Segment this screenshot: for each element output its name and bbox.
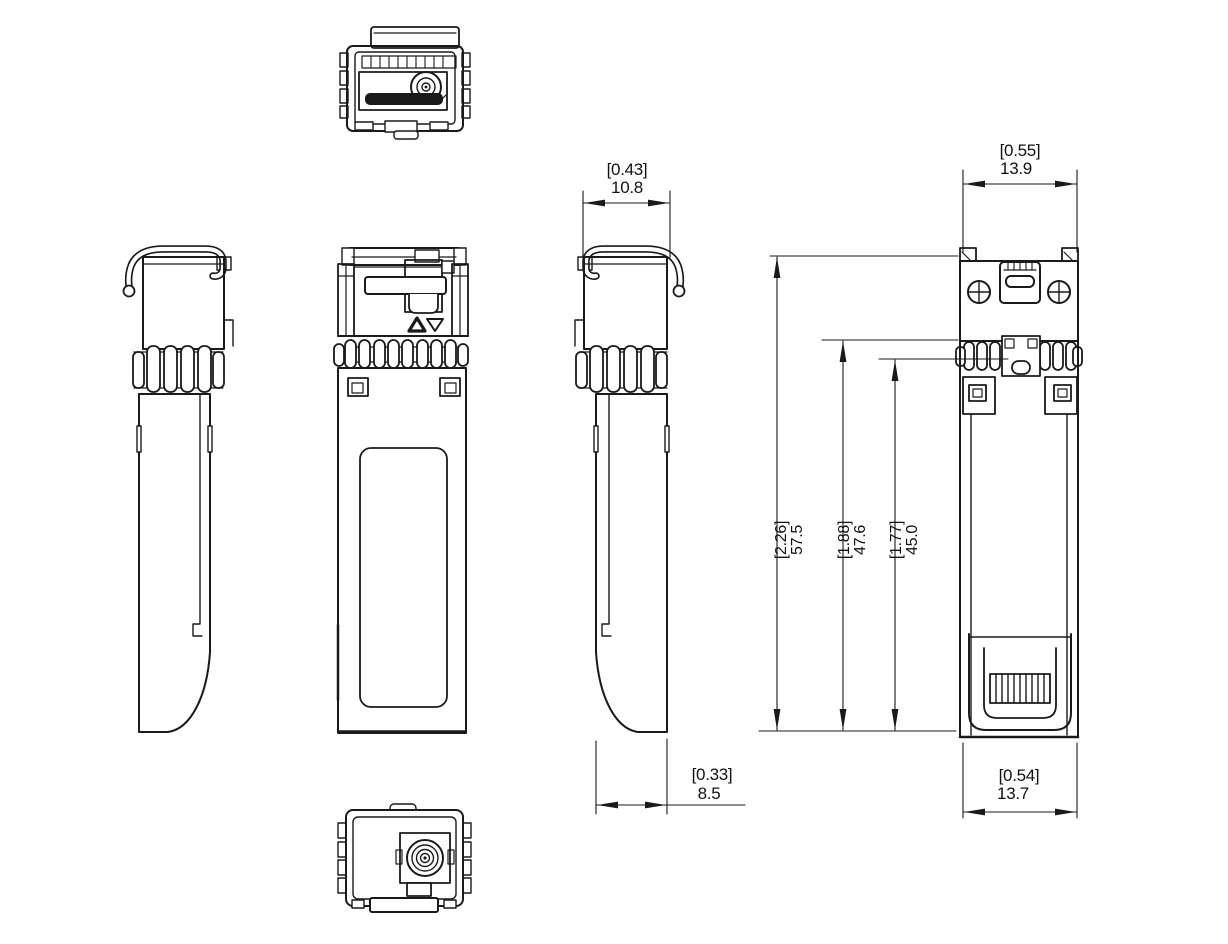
left-side-view [124, 249, 234, 732]
dim-mm-label: 45.0 [904, 525, 921, 555]
dim-mm-label: 13.7 [997, 784, 1029, 803]
dim-mm-label: 10.8 [611, 178, 643, 197]
dimension-face-width-bottom: [0.54] 13.7 [963, 743, 1077, 818]
bottom-end-view [338, 804, 471, 912]
dim-inch-label: [1.77] [888, 521, 905, 559]
center-latch-feature [1002, 336, 1040, 376]
dim-mm-label: 57.5 [789, 525, 806, 555]
dim-inch-label: [0.43] [607, 160, 648, 179]
emi-finger-band-front [334, 340, 468, 368]
dimension-side-width-bottom: [0.33] 8.5 [596, 739, 745, 814]
dim-inch-label: [2.26] [773, 521, 790, 559]
dimension-side-width-top: [0.43] 10.8 [583, 160, 670, 258]
pcb-face-view [956, 248, 1082, 737]
dim-inch-label: [0.55] [1000, 141, 1041, 160]
dim-inch-label: [0.54] [999, 766, 1040, 785]
dim-inch-label: [1.88] [836, 521, 853, 559]
screw-right [1048, 281, 1070, 303]
right-side-view [575, 249, 685, 732]
dimension-face-width-top: [0.55] 13.9 [963, 141, 1077, 252]
dim-mm-label: 13.9 [1000, 159, 1032, 178]
dimension-overall-length: [2.26] 57.5 [759, 256, 958, 731]
screw-left [968, 281, 990, 303]
front-view [334, 248, 468, 733]
dim-mm-label: 47.6 [852, 525, 869, 555]
emi-finger-band-right [576, 346, 667, 392]
triangle-markers [409, 318, 443, 331]
engineering-drawing-sheet: [0.43] 10.8 [0.55] 13.9 [2.26] 57.5 [1.8… [0, 0, 1228, 944]
rail-block-right [1045, 377, 1077, 414]
pcb-edge-connector [969, 634, 1071, 730]
top-end-view [340, 27, 470, 139]
dim-inch-label: [0.33] [692, 765, 733, 784]
rail-block-left [963, 377, 995, 414]
sfp-transceiver-drawing: [0.43] 10.8 [0.55] 13.9 [2.26] 57.5 [1.8… [0, 0, 1228, 944]
emi-finger-band [133, 346, 224, 392]
label-recess [360, 448, 447, 707]
dim-mm-label: 8.5 [698, 784, 721, 803]
